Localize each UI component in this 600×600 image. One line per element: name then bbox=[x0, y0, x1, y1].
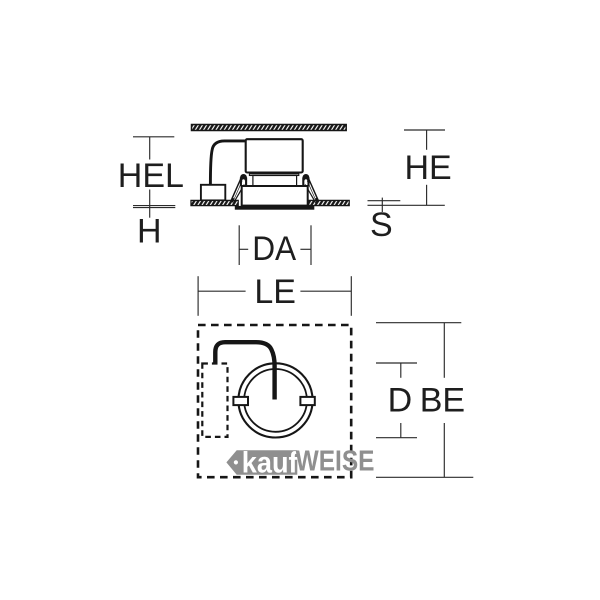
svg-text:BE: BE bbox=[420, 381, 465, 419]
svg-text:HE: HE bbox=[405, 149, 452, 187]
svg-text:WEISE: WEISE bbox=[296, 446, 375, 478]
svg-text:LE: LE bbox=[254, 273, 296, 311]
svg-text:S: S bbox=[370, 206, 393, 244]
svg-text:H: H bbox=[137, 212, 162, 250]
svg-text:D: D bbox=[388, 381, 413, 419]
svg-text:DA: DA bbox=[252, 230, 296, 268]
svg-text:kauf: kauf bbox=[242, 447, 298, 480]
svg-text:HEL: HEL bbox=[118, 157, 184, 195]
